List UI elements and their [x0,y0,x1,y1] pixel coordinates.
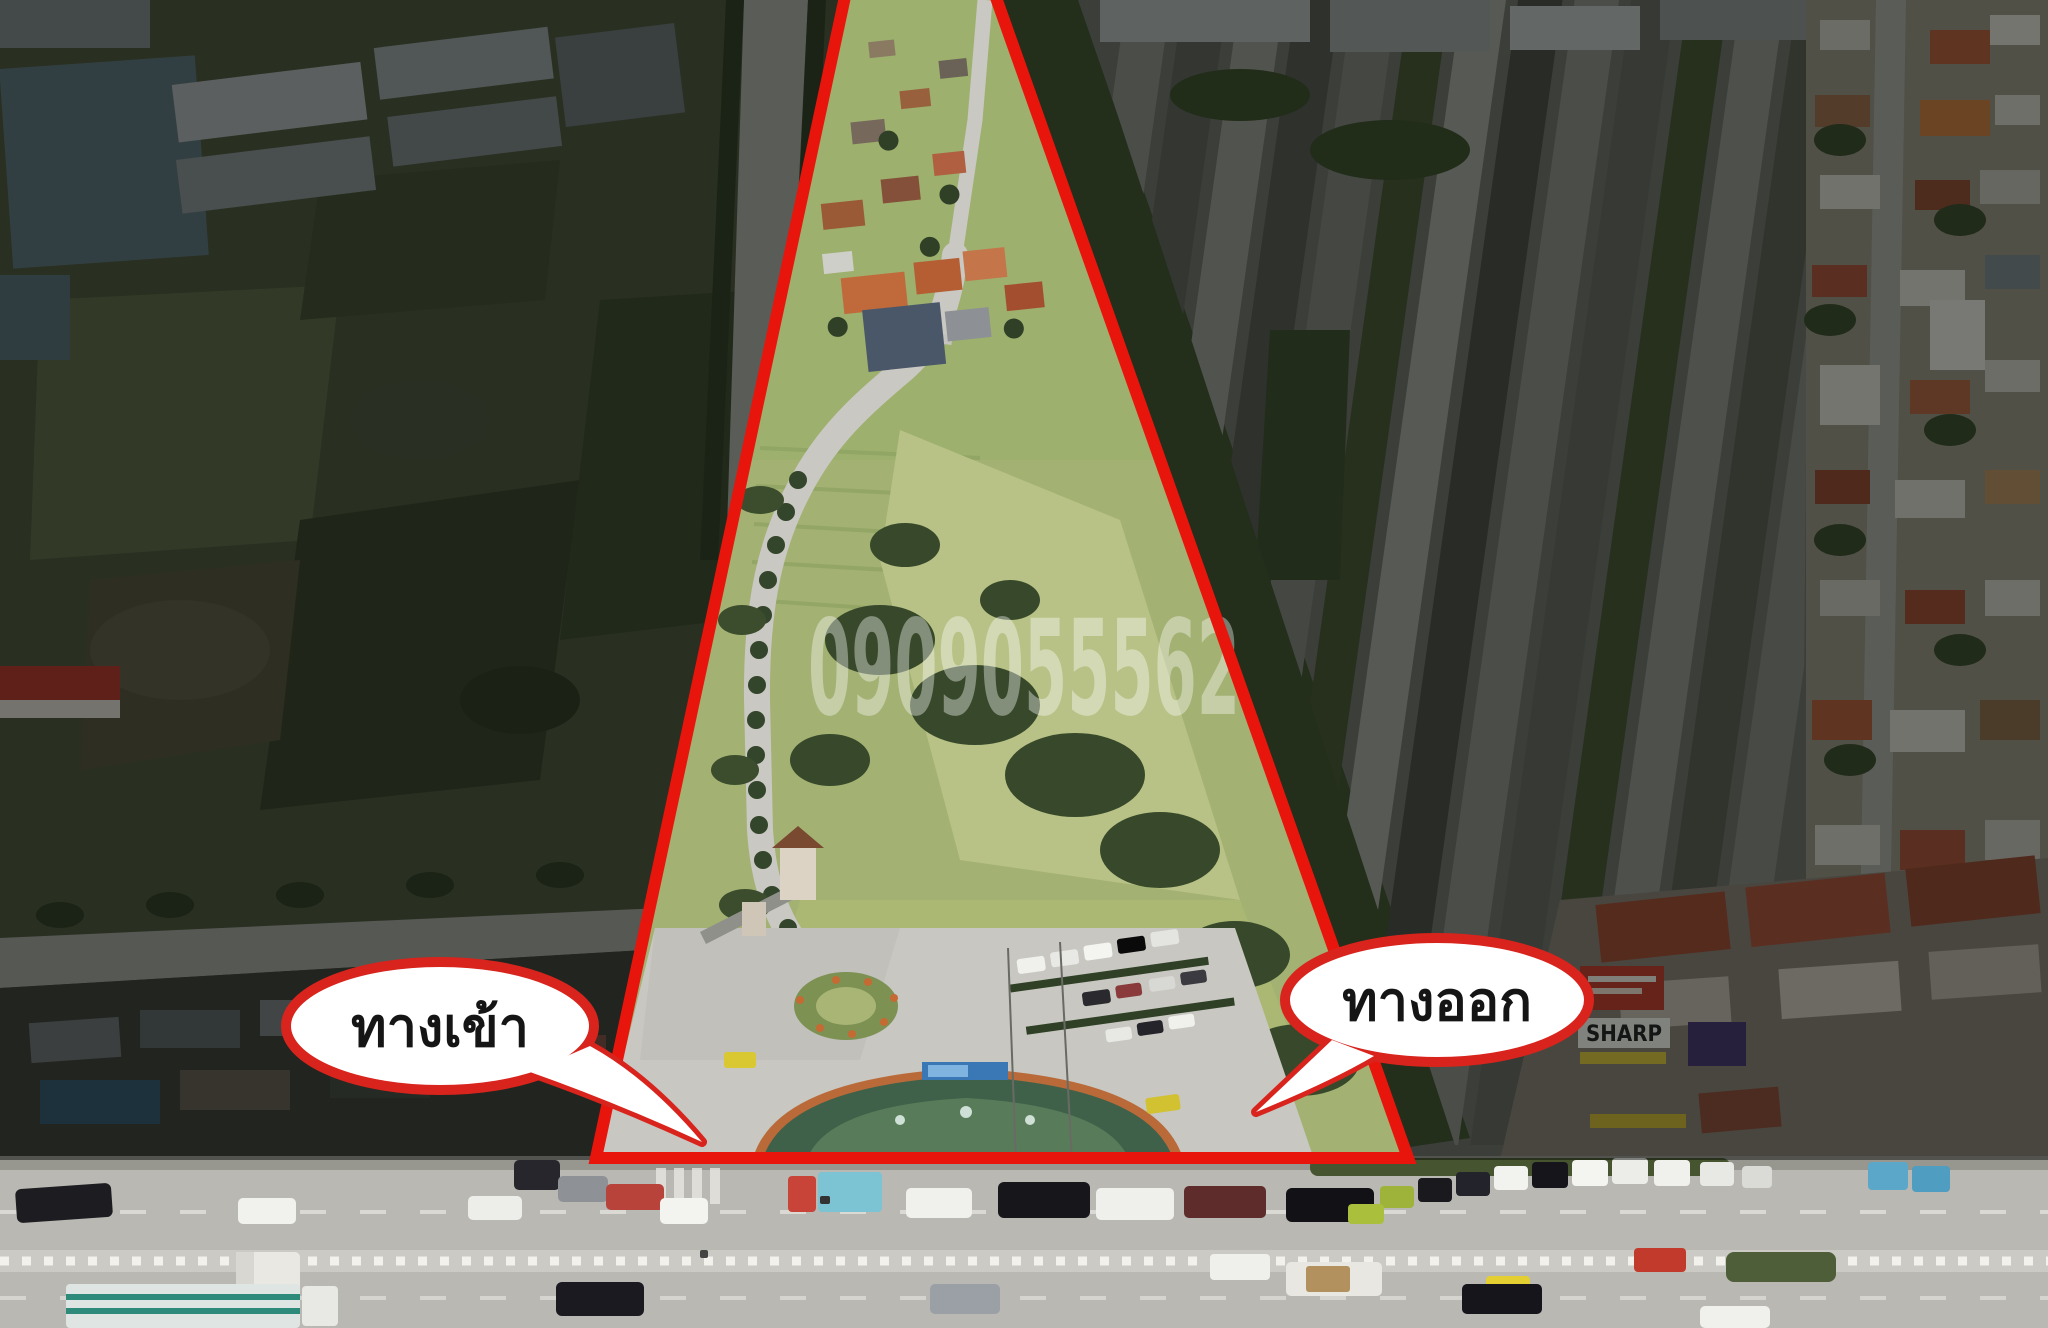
aerial-photo: SHARP [0,0,2048,1328]
exit-label: ทางออก [1342,970,1532,1033]
highway [0,1156,2048,1328]
taxi [724,1052,756,1068]
blue-gray-house [862,302,946,372]
watermark-phone-text: 0909055562 [808,592,1240,746]
container-truck [66,1284,338,1328]
aerial-photo-scene: SHARP [0,0,2048,1328]
median-hedge [1726,1252,1836,1282]
entrance-label: ทางเข้า [351,996,529,1059]
